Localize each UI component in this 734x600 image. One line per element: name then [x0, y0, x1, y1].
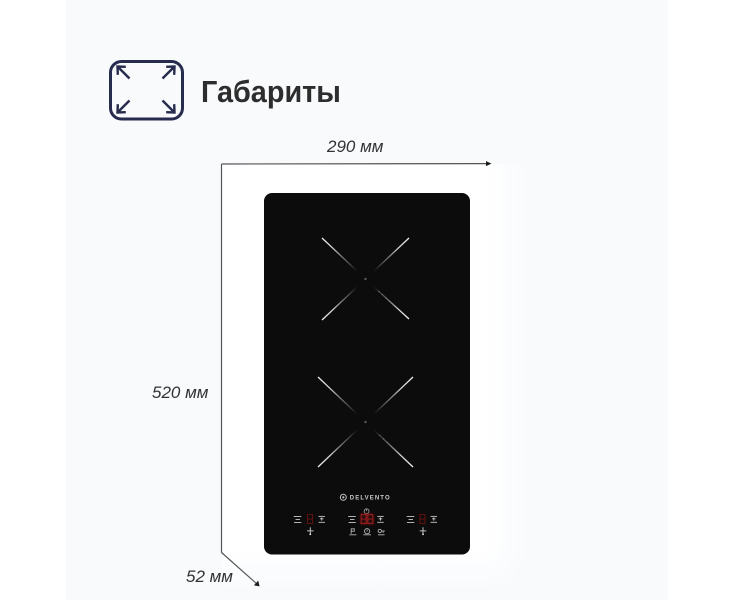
svg-text:DELVENTO: DELVENTO [350, 495, 391, 501]
